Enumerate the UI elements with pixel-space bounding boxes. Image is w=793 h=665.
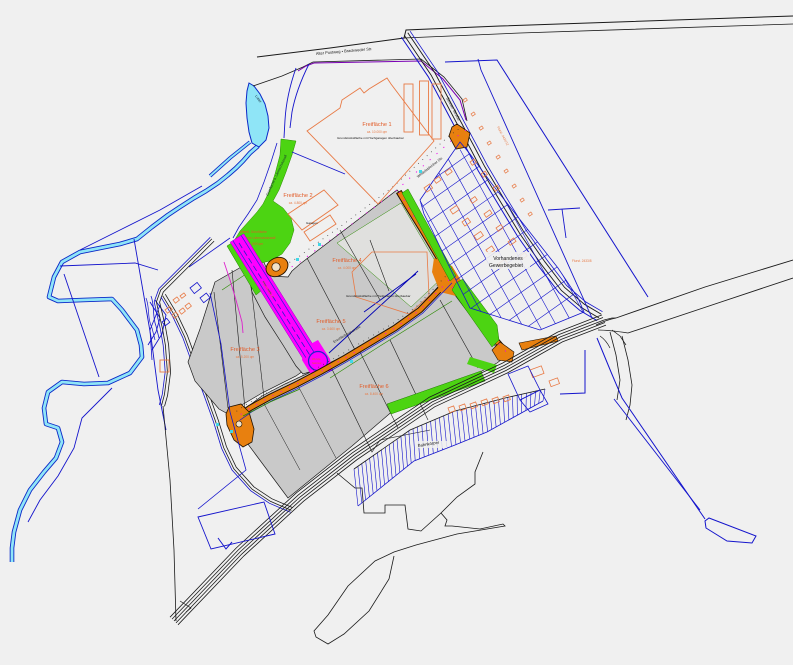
svg-text:hammer: hammer: [312, 361, 322, 365]
svg-text:ca. 4.000 qm: ca. 4.000 qm: [338, 266, 357, 270]
svg-text:öffentl. Grünfläche: öffentl. Grünfläche: [240, 230, 267, 234]
svg-text:Grundstücksfläche mit Hochgara: Grundstücksfläche mit Hochgaragen überba…: [337, 136, 404, 140]
svg-text:ca. 4.800 qm: ca. 4.800 qm: [289, 201, 308, 205]
svg-text:Freifläche 3: Freifläche 3: [230, 347, 259, 353]
svg-text:Gewerbegebiet: Gewerbegebiet: [489, 263, 524, 269]
svg-text:ca. 8.400 qm: ca. 8.400 qm: [365, 392, 384, 396]
svg-text:Garagen: Garagen: [306, 221, 318, 225]
svg-text:ca. 3.600 qm: ca. 3.600 qm: [322, 327, 341, 331]
svg-text:Flurst. 2433/8: Flurst. 2433/8: [572, 259, 592, 263]
svg-text:Freifläche 6: Freifläche 6: [359, 384, 388, 390]
svg-text:Wende-: Wende-: [312, 357, 321, 361]
svg-text:ca. 10.000 qm: ca. 10.000 qm: [367, 130, 388, 134]
svg-text:Freifläche 2: Freifläche 2: [283, 193, 312, 199]
svg-text:ca. 5.200 qm: ca. 5.200 qm: [236, 355, 255, 359]
svg-text:Freifläche 1: Freifläche 1: [362, 122, 391, 128]
svg-text:Freifläche 5: Freifläche 5: [316, 319, 345, 325]
svg-text:Freifläche 4: Freifläche 4: [332, 258, 361, 264]
svg-text:Vorhandenes: Vorhandenes: [493, 256, 523, 262]
